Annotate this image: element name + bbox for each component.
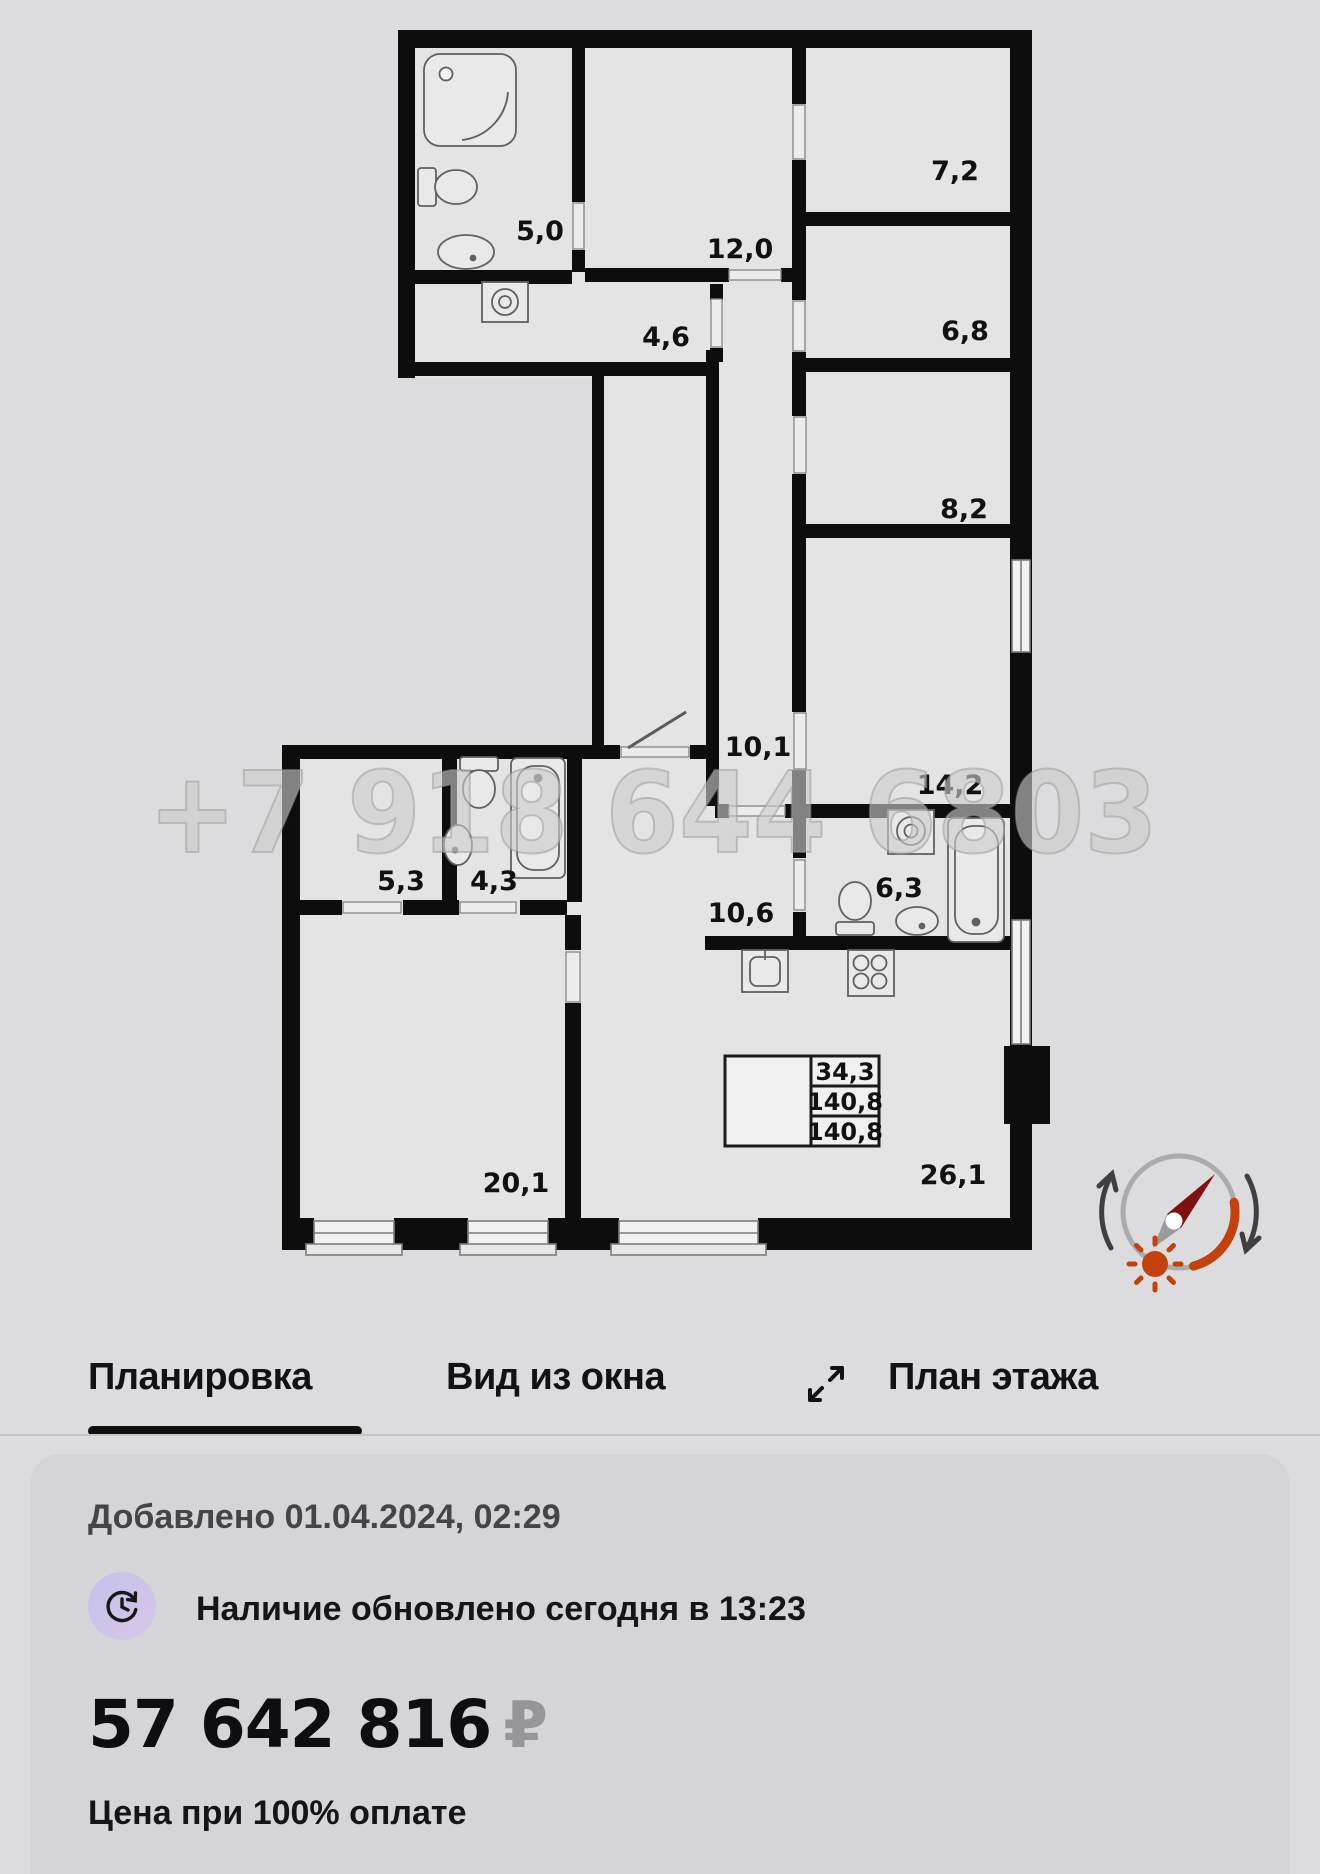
tabs-bar: Планировка Вид из окна План этажа: [0, 1348, 1320, 1434]
floor-plan-image[interactable]: 34,3 140,8 140,8 5,0 12,0 4,6 7,2 6,8 8,…: [0, 0, 1320, 1340]
price-note-text: Цена при 100% оплате: [88, 1794, 466, 1833]
toilet-icon: [836, 882, 874, 935]
divider: [0, 1434, 1320, 1436]
added-date-text: Добавлено 01.04.2024, 02:29: [88, 1498, 561, 1537]
kitchen-sink-icon: [742, 950, 788, 992]
washing-machine-icon: [482, 282, 528, 322]
room-area-label: 10,6: [708, 898, 775, 929]
compass-needle: [1153, 1174, 1215, 1248]
ruble-sign: ₽: [503, 1689, 548, 1763]
tab-window-view[interactable]: Вид из окна: [446, 1356, 665, 1399]
toilet-icon: [418, 168, 477, 206]
room-area-label: 6,8: [941, 316, 989, 347]
area-table-value: 140,8: [807, 1088, 883, 1116]
price: 57 642 816₽: [88, 1686, 548, 1763]
room-area-label: 12,0: [707, 234, 774, 265]
area-table-value: 140,8: [807, 1118, 883, 1146]
tab-layout[interactable]: Планировка: [88, 1356, 312, 1399]
compass-icon: [1099, 1156, 1259, 1290]
tab-floor-plan[interactable]: План этажа: [888, 1356, 1098, 1399]
sink-icon: [896, 907, 938, 935]
watermark-phone: +7 918 644 6803: [148, 749, 1158, 879]
shower-icon: [424, 54, 516, 146]
sun-icon: [1129, 1238, 1181, 1290]
listing-details-card: Добавлено 01.04.2024, 02:29 Наличие обно…: [30, 1454, 1290, 1874]
room-area-label: 26,1: [920, 1160, 987, 1191]
availability-text: Наличие обновлено сегодня в 13:23: [196, 1590, 806, 1629]
area-table-value: 34,3: [815, 1058, 874, 1086]
room-area-label: 7,2: [931, 156, 979, 187]
stove-icon: [848, 950, 894, 996]
availability-clock-icon: [88, 1572, 156, 1640]
fullscreen-icon[interactable]: [800, 1358, 852, 1410]
room-area-label: 4,6: [642, 322, 690, 353]
price-amount: 57 642 816: [88, 1686, 491, 1763]
room-area-label: 20,1: [483, 1168, 550, 1199]
room-area-label: 8,2: [940, 494, 988, 525]
room-area-label: 5,0: [516, 216, 564, 247]
sink-icon: [438, 235, 494, 269]
